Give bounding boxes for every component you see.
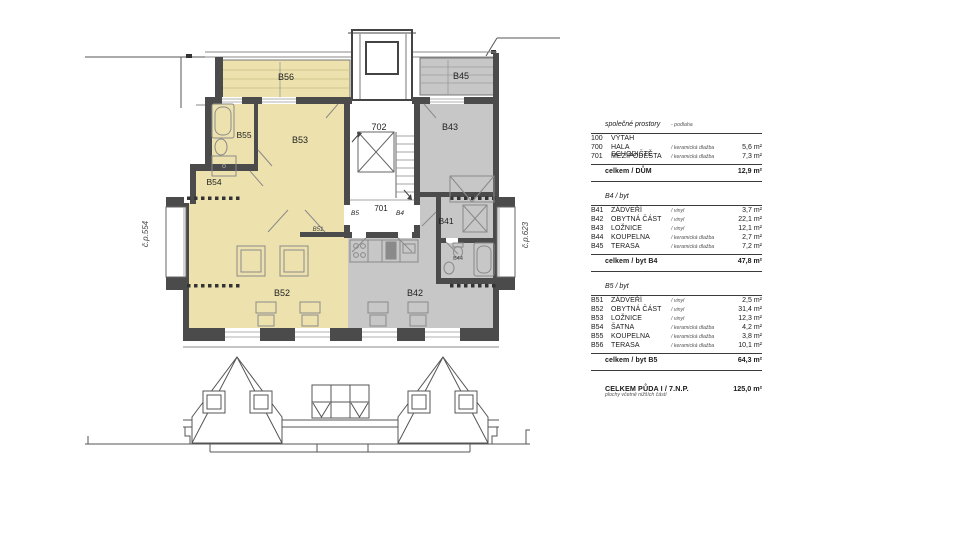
label-b44: B44 — [453, 256, 463, 262]
room-floor-note: / keramická dlažba — [671, 335, 726, 340]
section-title: B5 / byt — [605, 283, 726, 290]
room-code: 700 — [591, 144, 611, 151]
section-header: B4 / byt — [591, 193, 762, 204]
table-row: B43 LOŽNICE / vinyl 12,1 m² — [591, 225, 762, 234]
room-name: TERASA — [611, 342, 671, 349]
bay-window-left — [166, 207, 186, 277]
room-area: 12,1 m² — [726, 225, 762, 232]
label-b55: B55 — [236, 130, 251, 140]
room-floor-note: / keramická dlažba — [671, 344, 726, 349]
total-label: celkem / byt B5 — [605, 357, 726, 364]
room-code: B41 — [591, 207, 611, 214]
room-name: VÝTAH — [611, 135, 671, 142]
divider — [591, 133, 762, 134]
roof-elevation — [85, 347, 530, 452]
room-area: 4,2 m² — [726, 324, 762, 331]
table-row: B42 OBYTNÁ ČÁST / vinyl 22,1 m² — [591, 216, 762, 225]
table-row: B55 KOUPELNA / keramická dlažba 3,8 m² — [591, 333, 762, 342]
room-area: 22,1 m² — [726, 216, 762, 223]
room-area: 10,1 m² — [726, 342, 762, 349]
table-row: B53 LOŽNICE / vinyl 12,3 m² — [591, 315, 762, 324]
section-title: B4 / byt — [605, 193, 726, 200]
table-section-b5: B5 / byt B51 ZÁDVEŘÍ / vinyl 2,5 m² B52 … — [591, 283, 762, 371]
room-floor-note: / keramická dlažba — [671, 245, 726, 250]
bay-window-right — [497, 207, 515, 277]
room-name: MEZIPODESTA — [611, 153, 671, 160]
room-floor-note: / vinyl — [671, 308, 726, 313]
label-door-b4: B4 — [396, 210, 404, 217]
room-floor-note: / vinyl — [671, 299, 726, 304]
label-b43: B43 — [442, 122, 458, 132]
room-code: B53 — [591, 315, 611, 322]
label-b54: B54 — [206, 177, 221, 187]
room-area: 7,2 m² — [726, 243, 762, 250]
label-b41: B41 — [438, 216, 453, 226]
section-total: celkem / byt B4 47,8 m² — [591, 256, 762, 270]
label-b56: B56 — [278, 72, 294, 82]
room-name: KOUPELNA — [611, 333, 671, 340]
elevator-tower — [348, 30, 416, 100]
room-floor-note: / vinyl — [671, 209, 726, 214]
room-name: LOŽNICE — [611, 315, 671, 322]
total-area: 64,3 m² — [726, 357, 762, 364]
table-row: B45 TERASA / keramická dlažba 7,2 m² — [591, 243, 762, 252]
table-row: 701 MEZIPODESTA / keramická dlažba 7,3 m… — [591, 153, 762, 162]
room-area: 3,8 m² — [726, 333, 762, 340]
table-row: 700 HALA SCHODIŠTĚ / keramická dlažba 5,… — [591, 144, 762, 153]
divider — [591, 181, 762, 182]
room-code: 100 — [591, 135, 611, 142]
section-total: celkem / byt B5 64,3 m² — [591, 355, 762, 369]
grand-total-note: plochy včetně nižších částí — [605, 393, 762, 398]
room-name: ZÁDVEŘÍ — [611, 207, 671, 214]
label-702: 702 — [371, 122, 386, 132]
staircase — [350, 132, 414, 200]
label-b53: B53 — [292, 135, 308, 145]
room-area: 5,6 m² — [726, 144, 762, 151]
room-area: 2,5 m² — [726, 297, 762, 304]
room-floor-note: / keramická dlažba — [671, 326, 726, 331]
room-code: B52 — [591, 306, 611, 313]
grand-total-label: CELKEM PŮDA I / 7.N.P. — [605, 385, 726, 392]
room-floor-note: / keramická dlažba — [671, 155, 726, 160]
floorplan-sheet: B56 B45 702 B43 B55 B53 B54 B41 B51 B44 … — [0, 0, 960, 540]
label-cp554: č.p.554 — [141, 220, 150, 247]
room-name: TERASA — [611, 243, 671, 250]
room-code: B45 — [591, 243, 611, 250]
divider — [591, 271, 762, 272]
label-cp623: č.p.623 — [521, 221, 530, 248]
ref-tick-left — [186, 54, 192, 58]
room-code: 701 — [591, 153, 611, 160]
room-area: 3,7 m² — [726, 207, 762, 214]
table-row: B41 ZÁDVEŘÍ / vinyl 3,7 m² — [591, 207, 762, 216]
total-label: celkem / DŮM — [605, 168, 726, 175]
grand-total-area: 125,0 m² — [726, 385, 762, 392]
room-name: ZÁDVEŘÍ — [611, 297, 671, 304]
room-name: OBYTNÁ ČÁST — [611, 216, 671, 223]
floor-plan: B56 B45 702 B43 B55 B53 B54 B41 B51 B44 … — [0, 0, 580, 540]
room-area: 12,3 m² — [726, 315, 762, 322]
section-total: celkem / DŮM 12,9 m² — [591, 166, 762, 180]
section-floor-note: - podlaha — [671, 123, 726, 128]
divider — [591, 205, 762, 206]
label-701: 701 — [374, 204, 388, 213]
room-code: B43 — [591, 225, 611, 232]
total-area: 47,8 m² — [726, 258, 762, 265]
room-code: B55 — [591, 333, 611, 340]
label-b45: B45 — [453, 71, 469, 81]
table-row: B56 TERASA / keramická dlažba 10,1 m² — [591, 342, 762, 351]
divider — [591, 295, 762, 296]
table-row: 100 VÝTAH — [591, 135, 762, 144]
table-row: B52 OBYTNÁ ČÁST / vinyl 31,4 m² — [591, 306, 762, 315]
room-name: OBYTNÁ ČÁST — [611, 306, 671, 313]
table-section-common: společné prostory - podlaha 100 VÝTAH 70… — [591, 121, 762, 182]
table-row: B54 ŠATNA / keramická dlažba 4,2 m² — [591, 324, 762, 333]
grand-total: CELKEM PŮDA I / 7.N.P. 125,0 m² plochy v… — [591, 385, 762, 399]
room-floor-note: / vinyl — [671, 218, 726, 223]
divider — [591, 254, 762, 255]
divider — [591, 164, 762, 165]
room-floor-note: / vinyl — [671, 227, 726, 232]
total-area: 12,9 m² — [726, 168, 762, 175]
area-table: společné prostory - podlaha 100 VÝTAH 70… — [591, 121, 762, 399]
divider — [591, 370, 762, 371]
room-code: B51 — [591, 297, 611, 304]
section-title: společné prostory — [605, 121, 671, 128]
label-b51: B51 — [313, 227, 324, 233]
room-name: LOŽNICE — [611, 225, 671, 232]
room-area: 31,4 m² — [726, 306, 762, 313]
total-label: celkem / byt B4 — [605, 258, 726, 265]
divider — [591, 353, 762, 354]
room-floor-note: / keramická dlažba — [671, 236, 726, 241]
room-code: B44 — [591, 234, 611, 241]
label-door-b5: B5 — [351, 210, 359, 217]
section-header: společné prostory - podlaha — [591, 121, 762, 132]
room-floor-note: / vinyl — [671, 317, 726, 322]
room-name: ŠATNA — [611, 324, 671, 331]
table-row: B44 KOUPELNA / keramická dlažba 2,7 m² — [591, 234, 762, 243]
room-area: 7,3 m² — [726, 153, 762, 160]
room-area: 2,7 m² — [726, 234, 762, 241]
label-b42: B42 — [407, 288, 423, 298]
label-b52: B52 — [274, 288, 290, 298]
room-floor-note: / keramická dlažba — [671, 146, 726, 151]
room-name: KOUPELNA — [611, 234, 671, 241]
room-code: B56 — [591, 342, 611, 349]
room-code: B42 — [591, 216, 611, 223]
section-header: B5 / byt — [591, 283, 762, 294]
table-row: B51 ZÁDVEŘÍ / vinyl 2,5 m² — [591, 297, 762, 306]
table-section-b4: B4 / byt B41 ZÁDVEŘÍ / vinyl 3,7 m² B42 … — [591, 193, 762, 272]
room-code: B54 — [591, 324, 611, 331]
